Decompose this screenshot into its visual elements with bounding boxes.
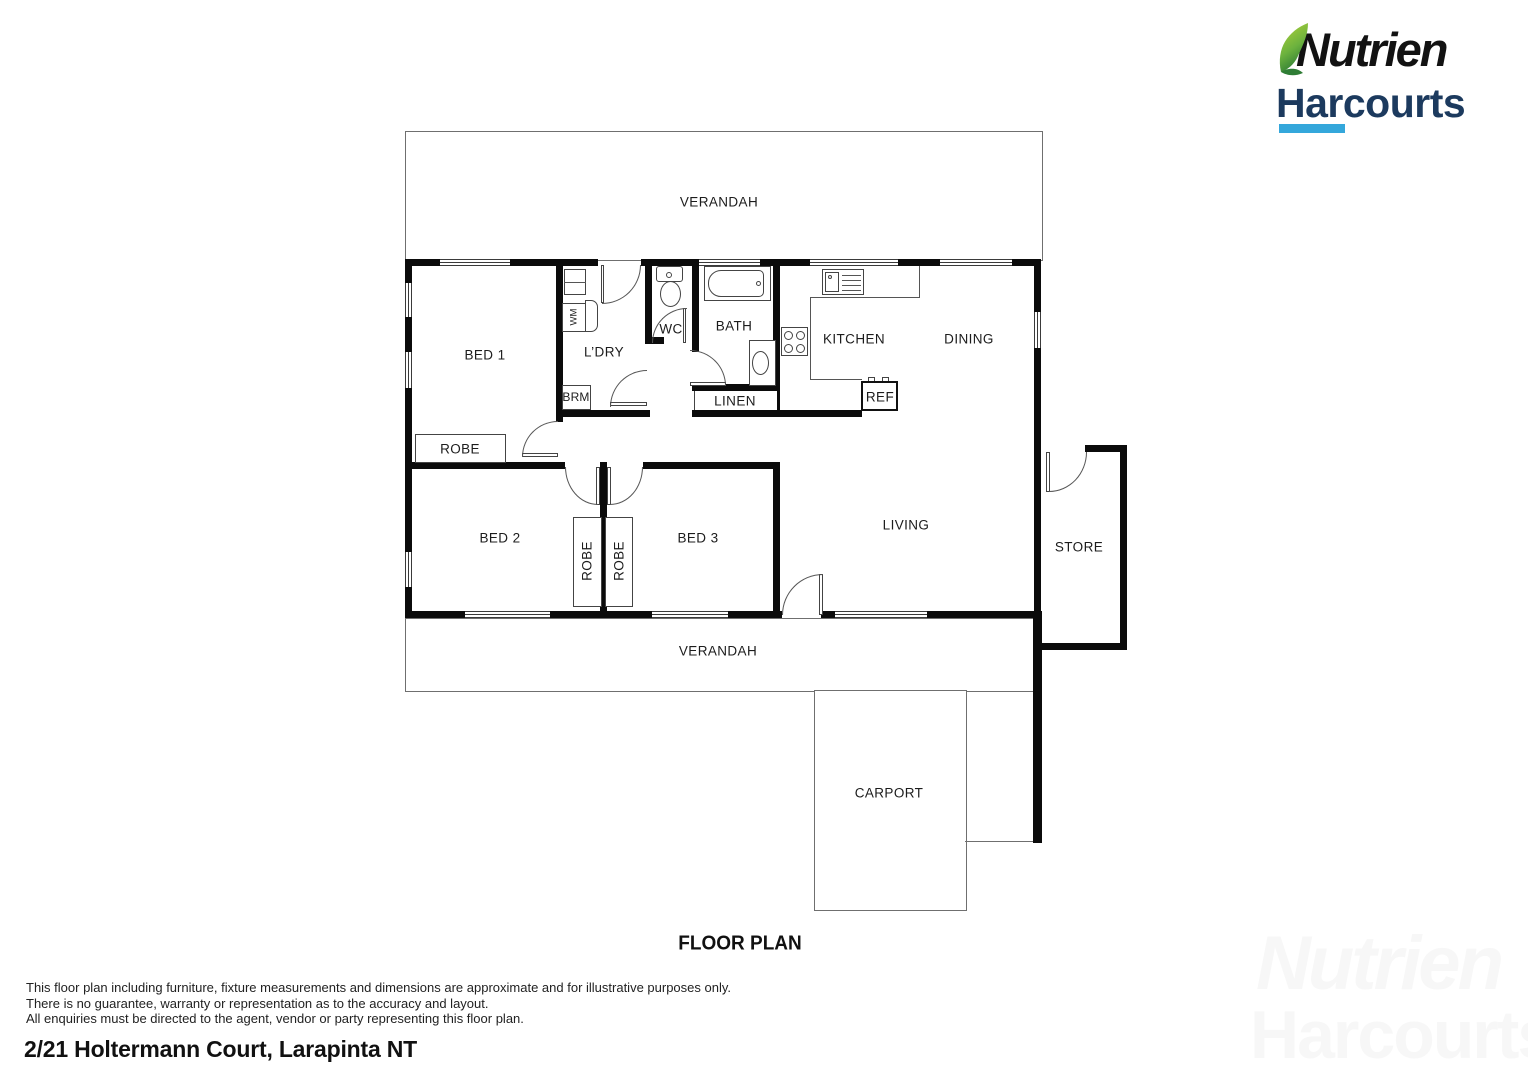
label-living: LIVING	[883, 518, 930, 533]
door-arc-laundry	[610, 370, 647, 407]
window	[810, 259, 898, 266]
door-arc-living	[782, 574, 823, 615]
kitchen-counter-edge	[810, 379, 862, 380]
wall	[405, 317, 412, 352]
door-arc-store	[1049, 452, 1087, 492]
label-broom-cupboard: BRM	[562, 390, 589, 404]
window	[465, 611, 550, 618]
leaf-icon	[1272, 22, 1322, 80]
window	[1034, 312, 1041, 348]
label-robe-bed1: ROBE	[440, 442, 480, 457]
cooktop-burner	[796, 344, 805, 353]
wall	[728, 611, 782, 618]
wall	[898, 259, 940, 266]
label-bath: BATH	[716, 319, 753, 334]
disclaimer-line: All enquiries must be directed to the ag…	[26, 1011, 731, 1027]
window	[405, 352, 412, 388]
wall	[405, 388, 412, 552]
window	[405, 552, 412, 587]
label-washing-machine: WM	[569, 309, 580, 326]
wall-laundry-bottom	[556, 410, 650, 417]
kitchen-counter-edge	[919, 266, 920, 297]
laundry-cabinet-shelf-line	[564, 282, 586, 283]
laundry-trough	[585, 300, 598, 332]
door-arc-bed1	[522, 421, 558, 457]
store-wall	[1041, 643, 1127, 650]
cooktop-burner	[784, 344, 793, 353]
logo-underline-bar	[1279, 124, 1345, 133]
watermark-nutrien: Nutrien	[1256, 920, 1501, 1007]
toilet-button	[666, 272, 672, 278]
kitchen-counter-edge	[810, 297, 920, 298]
label-wc: WC	[659, 322, 682, 337]
carport-outline	[814, 690, 967, 911]
toilet-bowl	[660, 281, 681, 307]
sink-drainer-line	[842, 285, 861, 286]
watermark-harcourts: Harcourts	[1250, 996, 1528, 1074]
kitchen-sink-bowl	[825, 272, 839, 292]
door-arc-bed3	[610, 467, 643, 505]
window	[652, 611, 728, 618]
floor-plan-page: { "branding": { "logo_line1": "Nutrien",…	[0, 0, 1528, 1080]
wall-bed3-top	[643, 462, 780, 469]
wall	[1034, 259, 1041, 312]
disclaimer-line: There is no guarantee, warranty or repre…	[26, 996, 731, 1012]
label-verandah-top: VERANDAH	[680, 195, 758, 210]
wall	[760, 259, 810, 266]
label-laundry: L’DRY	[584, 345, 624, 360]
window	[695, 259, 760, 266]
wall-wc-bath	[692, 259, 699, 352]
wall	[405, 587, 412, 618]
page-title: FLOOR PLAN	[678, 933, 802, 956]
label-kitchen: KITCHEN	[823, 332, 885, 347]
label-carport: CARPORT	[855, 786, 924, 801]
window	[405, 283, 412, 317]
bath-faucet	[756, 281, 761, 286]
wall	[405, 611, 465, 618]
window	[440, 259, 510, 266]
label-dining: DINING	[944, 332, 994, 347]
wall	[510, 259, 598, 266]
label-verandah-bottom: VERANDAH	[679, 644, 757, 659]
wall	[550, 611, 652, 618]
door-arc-laundry-ext	[602, 265, 641, 304]
floor-plan-drawing: VERANDAH BED 1 ROBE L’DRY BRM WC BATH LI…	[0, 0, 1528, 1080]
wall	[405, 259, 412, 283]
disclaimer-line: This floor plan including furniture, fix…	[26, 980, 731, 996]
cooktop-burner	[784, 331, 793, 340]
label-robe-bed3: ROBE	[612, 541, 627, 581]
sink-drainer-line	[842, 280, 861, 281]
door-arc-bed2	[565, 467, 598, 505]
wall-wc-left	[645, 259, 652, 344]
wall-yard-extension	[1033, 618, 1042, 843]
property-address: 2/21 Holtermann Court, Larapinta NT	[24, 1036, 417, 1063]
label-bed3: BED 3	[677, 531, 718, 546]
wall-bed3-right	[773, 462, 780, 611]
kitchen-sink-tap	[828, 275, 832, 279]
label-linen: LINEN	[714, 394, 756, 409]
cooktop-burner	[796, 331, 805, 340]
logo-harcourts-text: Harcourts	[1276, 80, 1465, 127]
label-bed1: BED 1	[464, 348, 505, 363]
disclaimer-text: This floor plan including furniture, fix…	[26, 980, 731, 1027]
wall	[1034, 348, 1041, 618]
label-fridge: REF	[866, 390, 894, 405]
wall	[821, 611, 835, 618]
window	[940, 259, 1012, 266]
vanity-basin	[752, 351, 769, 375]
wall-hall-top	[692, 410, 862, 417]
store-wall	[1120, 445, 1127, 650]
sink-drainer-line	[842, 290, 861, 291]
wall	[927, 611, 1042, 618]
patio-edge-line	[965, 841, 1040, 842]
label-bed2: BED 2	[479, 531, 520, 546]
label-robe-bed2: ROBE	[580, 541, 595, 581]
label-store: STORE	[1055, 540, 1103, 555]
sink-drainer-line	[842, 275, 861, 276]
door-arc-bath	[690, 350, 726, 386]
window	[835, 611, 927, 618]
wall-kitchen-left	[773, 259, 780, 411]
wall-bed2-top	[405, 462, 565, 469]
kitchen-counter-edge	[810, 297, 811, 379]
